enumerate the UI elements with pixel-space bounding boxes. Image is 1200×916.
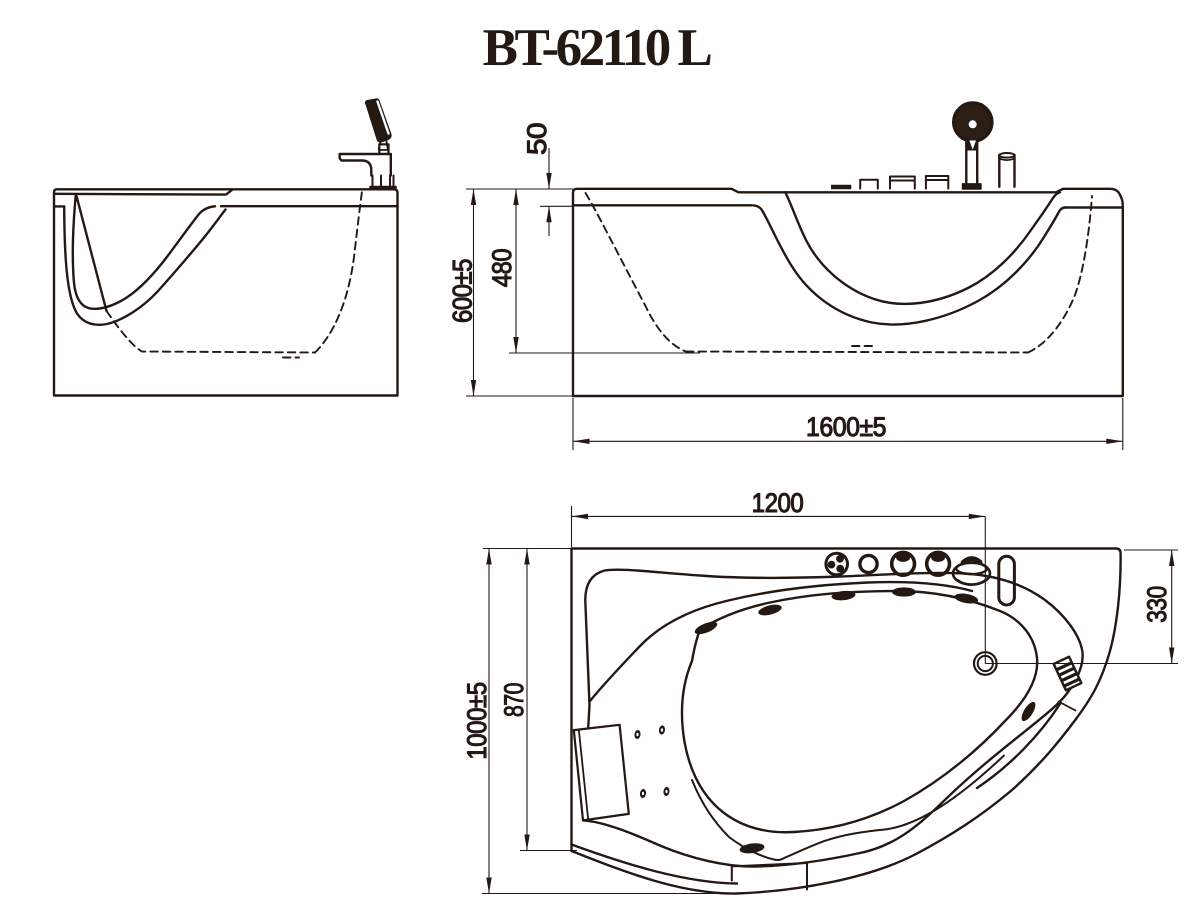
svg-text:1000±5: 1000±5 xyxy=(462,682,492,759)
svg-text:50: 50 xyxy=(522,123,552,155)
svg-text:870: 870 xyxy=(499,683,529,717)
svg-text:330: 330 xyxy=(1142,586,1172,623)
svg-text:480: 480 xyxy=(487,249,517,287)
svg-text:1200: 1200 xyxy=(752,488,804,518)
svg-text:BT-62110 L: BT-62110 L xyxy=(483,19,712,77)
svg-text:600±5: 600±5 xyxy=(448,259,478,323)
svg-text:1600±5: 1600±5 xyxy=(806,412,886,442)
